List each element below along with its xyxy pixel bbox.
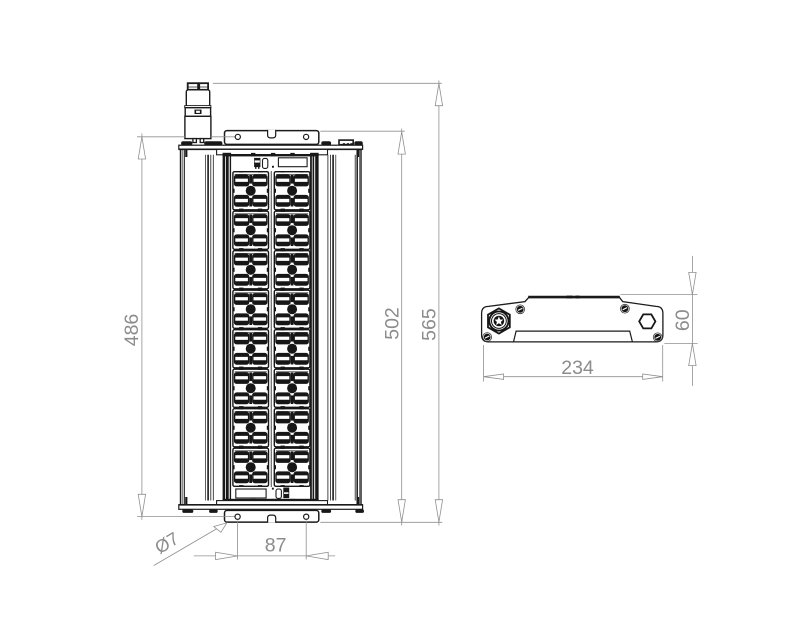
svg-text:486: 486 [121,314,143,347]
svg-text:565: 565 [419,308,441,341]
svg-text:Ø7: Ø7 [151,528,182,558]
svg-text:60: 60 [672,309,694,331]
svg-text:502: 502 [382,307,404,340]
svg-text:87: 87 [265,534,287,556]
svg-text:234: 234 [561,357,594,379]
